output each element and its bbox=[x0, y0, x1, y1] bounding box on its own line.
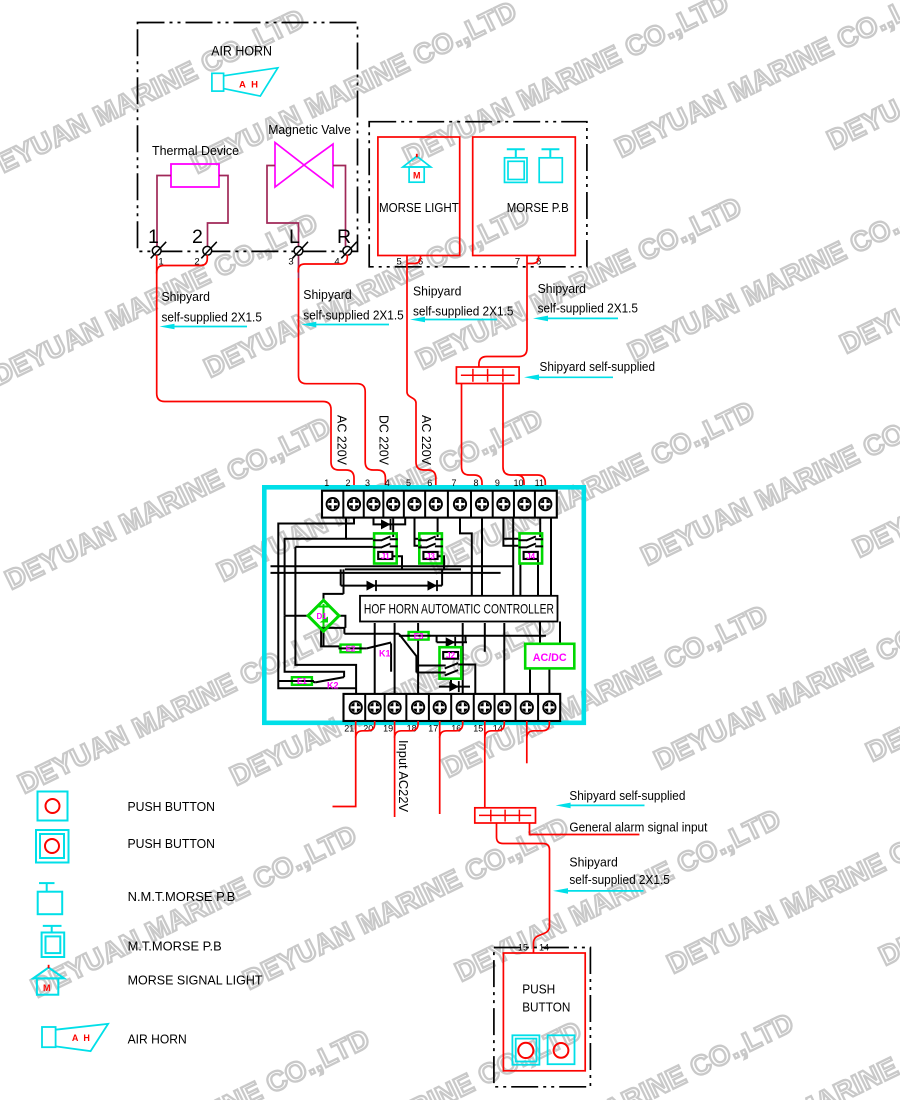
svg-text:Shipyard: Shipyard bbox=[569, 856, 617, 870]
svg-text:Shipyard: Shipyard bbox=[303, 288, 351, 302]
svg-text:20: 20 bbox=[363, 724, 373, 734]
svg-text:E1: E1 bbox=[297, 677, 307, 686]
svg-text:3: 3 bbox=[288, 257, 293, 268]
svg-text:HOF HORN AUTOMATIC CONTROLLER: HOF HORN AUTOMATIC CONTROLLER bbox=[364, 601, 554, 616]
svg-text:R: R bbox=[337, 226, 351, 248]
svg-text:M: M bbox=[413, 171, 421, 181]
svg-text:General alarm signal input: General alarm signal input bbox=[569, 821, 707, 835]
svg-text:14: 14 bbox=[493, 724, 503, 734]
svg-text:PUSH: PUSH bbox=[522, 981, 555, 996]
svg-text:M.T.MORSE P.B: M.T.MORSE P.B bbox=[128, 940, 222, 954]
svg-text:AIR HORN: AIR HORN bbox=[128, 1033, 187, 1047]
svg-text:Shipyard: Shipyard bbox=[538, 282, 586, 296]
svg-text:DEYUAN MARINE CO.,LTD: DEYUAN MARINE CO.,LTD bbox=[0, 2, 310, 187]
svg-text:8: 8 bbox=[473, 478, 478, 488]
svg-text:BUTTON: BUTTON bbox=[522, 1000, 570, 1015]
svg-text:self-supplied 2X1.5: self-supplied 2X1.5 bbox=[162, 311, 262, 325]
svg-text:1: 1 bbox=[324, 478, 329, 488]
svg-text:1: 1 bbox=[148, 226, 159, 248]
svg-text:PUSH BUTTON: PUSH BUTTON bbox=[128, 800, 216, 814]
svg-text:DEYUAN MARINE CO.,LTD: DEYUAN MARINE CO.,LTD bbox=[835, 174, 900, 359]
svg-text:Input AC22V: Input AC22V bbox=[396, 740, 411, 812]
svg-text:16: 16 bbox=[451, 724, 461, 734]
svg-text:17: 17 bbox=[428, 724, 438, 734]
svg-text:DEYUAN MARINE CO.,LTD: DEYUAN MARINE CO.,LTD bbox=[13, 614, 349, 799]
svg-text:7: 7 bbox=[451, 478, 456, 488]
svg-text:K1: K1 bbox=[379, 649, 391, 659]
svg-text:AC/DC: AC/DC bbox=[533, 652, 567, 664]
svg-text:18: 18 bbox=[407, 724, 417, 734]
svg-text:K2: K2 bbox=[327, 681, 339, 691]
svg-text:D1: D1 bbox=[317, 612, 328, 621]
svg-text:Shipyard: Shipyard bbox=[413, 285, 461, 299]
svg-text:J1: J1 bbox=[381, 552, 390, 561]
svg-text:MORSE P.B: MORSE P.B bbox=[507, 200, 569, 215]
svg-text:4: 4 bbox=[385, 478, 390, 488]
svg-text:Shipyard self-supplied: Shipyard self-supplied bbox=[569, 789, 685, 803]
svg-text:self-supplied 2X1.5: self-supplied 2X1.5 bbox=[413, 305, 513, 319]
svg-text:MORSE SIGNAL LIGHT: MORSE SIGNAL LIGHT bbox=[128, 974, 263, 988]
svg-text:M: M bbox=[43, 983, 51, 993]
svg-text:DEYUAN MARINE CO.,LTD: DEYUAN MARINE CO.,LTD bbox=[238, 810, 574, 995]
svg-text:4: 4 bbox=[334, 257, 339, 268]
svg-text:J3: J3 bbox=[426, 552, 435, 561]
svg-text:19: 19 bbox=[383, 724, 393, 734]
svg-text:Shipyard: Shipyard bbox=[162, 290, 210, 304]
svg-text:DC 220V: DC 220V bbox=[377, 415, 392, 465]
svg-text:Shipyard self-supplied: Shipyard self-supplied bbox=[540, 360, 656, 374]
svg-text:J4: J4 bbox=[526, 552, 535, 561]
svg-text:15: 15 bbox=[473, 724, 483, 734]
svg-text:J2: J2 bbox=[446, 651, 455, 660]
svg-text:self-supplied 2X1.5: self-supplied 2X1.5 bbox=[569, 873, 669, 887]
svg-text:5: 5 bbox=[397, 257, 402, 268]
svg-text:AIR HORN: AIR HORN bbox=[211, 43, 272, 58]
svg-text:AC 220V: AC 220V bbox=[419, 415, 434, 465]
svg-text:11: 11 bbox=[535, 478, 544, 488]
svg-text:DEYUAN MARINE CO.,LTD: DEYUAN MARINE CO.,LTD bbox=[437, 598, 773, 783]
svg-text:MORSE LIGHT: MORSE LIGHT bbox=[379, 200, 459, 215]
svg-text:21: 21 bbox=[344, 724, 354, 734]
svg-text:14: 14 bbox=[539, 943, 549, 953]
svg-text:DEYUAN MARINE CO.,LTD: DEYUAN MARINE CO.,LTD bbox=[199, 198, 535, 383]
svg-text:N.M.T.MORSE P.B: N.M.T.MORSE P.B bbox=[128, 890, 236, 904]
svg-text:5: 5 bbox=[406, 478, 411, 488]
svg-text:DEYUAN MARINE CO.,LTD: DEYUAN MARINE CO.,LTD bbox=[649, 590, 900, 775]
svg-text:6: 6 bbox=[427, 478, 432, 488]
svg-text:A H: A H bbox=[239, 80, 258, 91]
svg-text:E2: E2 bbox=[346, 645, 356, 654]
svg-text:PUSH BUTTON: PUSH BUTTON bbox=[128, 837, 216, 851]
svg-text:DEYUAN MARINE CO.,LTD: DEYUAN MARINE CO.,LTD bbox=[848, 378, 900, 563]
svg-text:10: 10 bbox=[513, 478, 523, 488]
svg-text:Magnetic Valve: Magnetic Valve bbox=[268, 122, 351, 137]
svg-text:15: 15 bbox=[518, 943, 528, 953]
svg-text:9: 9 bbox=[495, 478, 500, 488]
svg-text:2: 2 bbox=[192, 226, 203, 248]
svg-text:Thermal Device: Thermal Device bbox=[152, 143, 239, 158]
svg-text:A H: A H bbox=[72, 1033, 90, 1043]
svg-text:self-supplied 2X1.5: self-supplied 2X1.5 bbox=[303, 309, 403, 323]
svg-text:7: 7 bbox=[515, 257, 520, 268]
svg-text:E3: E3 bbox=[414, 632, 424, 641]
svg-text:self-supplied 2X1.5: self-supplied 2X1.5 bbox=[538, 302, 638, 316]
svg-text:L: L bbox=[289, 226, 300, 248]
svg-text:3: 3 bbox=[365, 478, 370, 488]
svg-text:2: 2 bbox=[345, 478, 350, 488]
svg-text:AC 220V: AC 220V bbox=[335, 415, 350, 465]
